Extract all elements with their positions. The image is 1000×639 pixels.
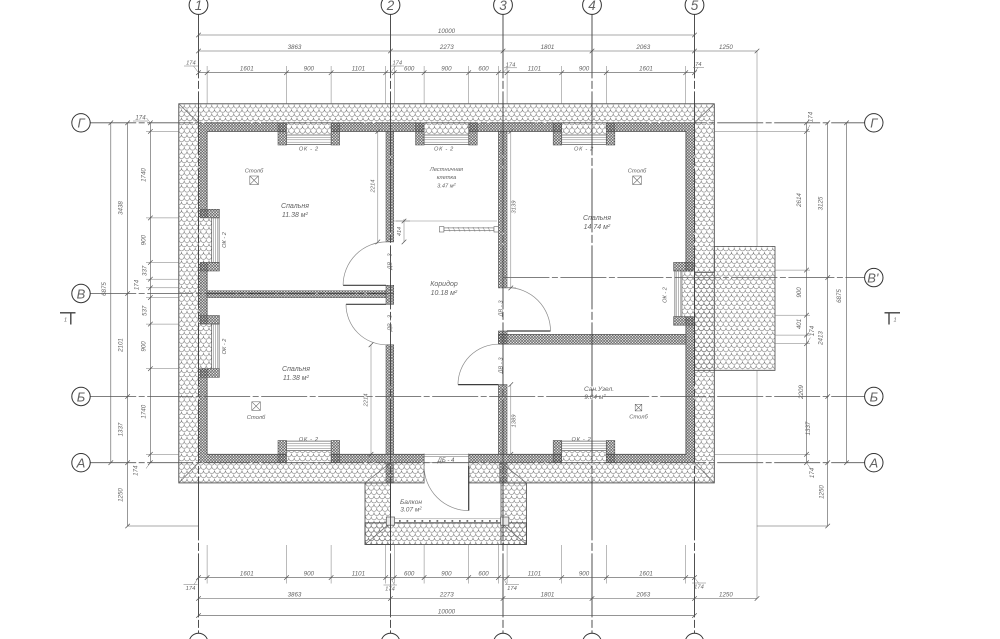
svg-text:174: 174 xyxy=(135,115,146,122)
svg-text:2214: 2214 xyxy=(364,394,370,408)
svg-text:1337: 1337 xyxy=(805,421,812,435)
svg-text:11.38 м2: 11.38 м2 xyxy=(282,211,309,219)
svg-text:3125: 3125 xyxy=(818,196,825,210)
svg-text:1740: 1740 xyxy=(141,168,148,182)
svg-text:Коридор: Коридор xyxy=(430,280,458,288)
svg-text:3139: 3139 xyxy=(512,200,518,214)
svg-text:В': В' xyxy=(867,270,879,285)
svg-text:1801: 1801 xyxy=(541,44,555,51)
svg-text:900: 900 xyxy=(441,570,452,577)
svg-text:900: 900 xyxy=(304,66,315,73)
svg-text:Спальня: Спальня xyxy=(281,203,309,210)
svg-text:Б: Б xyxy=(77,389,86,404)
svg-text:337: 337 xyxy=(141,265,148,276)
svg-text:ОК - 2: ОК - 2 xyxy=(299,437,319,443)
svg-text:900: 900 xyxy=(579,66,590,73)
svg-text:2101: 2101 xyxy=(117,338,124,353)
svg-text:1101: 1101 xyxy=(528,66,541,73)
svg-text:ДБ - 4: ДБ - 4 xyxy=(437,458,455,464)
svg-text:14.74 м2: 14.74 м2 xyxy=(584,223,611,231)
svg-text:ОК - 2: ОК - 2 xyxy=(574,147,594,153)
svg-text:600: 600 xyxy=(478,66,489,73)
svg-text:174: 174 xyxy=(134,279,141,290)
svg-text:900: 900 xyxy=(304,570,315,577)
svg-text:ДВ - 3: ДВ - 3 xyxy=(387,253,393,271)
svg-text:900: 900 xyxy=(141,341,148,352)
svg-text:174: 174 xyxy=(385,586,395,592)
svg-text:2273: 2273 xyxy=(439,591,454,598)
svg-text:2413: 2413 xyxy=(818,331,825,346)
svg-text:11.38 м2: 11.38 м2 xyxy=(283,374,310,382)
svg-text:ОК - 2: ОК - 2 xyxy=(222,338,228,355)
svg-text:А: А xyxy=(76,456,86,471)
svg-text:Столб: Столб xyxy=(245,169,264,175)
svg-text:2063: 2063 xyxy=(635,44,650,51)
svg-text:Г: Г xyxy=(870,116,878,131)
svg-text:1601: 1601 xyxy=(240,66,254,73)
svg-text:1: 1 xyxy=(195,0,203,13)
svg-text:74: 74 xyxy=(695,62,701,68)
svg-text:174: 174 xyxy=(186,586,196,592)
svg-text:Спальня: Спальня xyxy=(282,366,310,373)
svg-text:1: 1 xyxy=(64,318,67,324)
svg-text:3.07 м2: 3.07 м2 xyxy=(400,506,422,514)
svg-text:1250: 1250 xyxy=(719,44,733,51)
svg-text:174: 174 xyxy=(809,467,816,478)
svg-text:900: 900 xyxy=(579,570,590,577)
svg-text:3863: 3863 xyxy=(288,44,302,51)
svg-text:10000: 10000 xyxy=(438,28,456,35)
svg-text:Столб: Столб xyxy=(629,414,648,420)
svg-text:900: 900 xyxy=(796,287,803,298)
svg-text:ОК - 2: ОК - 2 xyxy=(434,147,454,153)
svg-text:2063: 2063 xyxy=(635,591,650,598)
svg-text:1601: 1601 xyxy=(639,66,653,73)
svg-text:2209: 2209 xyxy=(798,385,805,400)
svg-text:2614: 2614 xyxy=(796,193,803,208)
svg-text:Столб: Столб xyxy=(247,415,266,421)
svg-text:Столб: Столб xyxy=(628,169,647,175)
svg-text:3438: 3438 xyxy=(117,201,124,215)
svg-text:клетка: клетка xyxy=(437,175,457,181)
svg-text:Сан.Узел.: Сан.Узел. xyxy=(584,386,614,393)
svg-text:174: 174 xyxy=(133,465,140,476)
svg-text:Спальня: Спальня xyxy=(583,215,611,222)
svg-text:ОК - 2: ОК - 2 xyxy=(222,231,228,248)
svg-text:401: 401 xyxy=(796,319,803,329)
svg-text:9.04 м2: 9.04 м2 xyxy=(584,393,606,401)
svg-text:10.18 м2: 10.18 м2 xyxy=(431,289,458,297)
svg-text:1601: 1601 xyxy=(639,570,653,577)
svg-text:ОК - 2: ОК - 2 xyxy=(663,286,669,303)
svg-text:4: 4 xyxy=(588,0,596,13)
svg-text:414: 414 xyxy=(397,227,403,236)
svg-text:1250: 1250 xyxy=(818,485,825,499)
svg-text:900: 900 xyxy=(441,66,452,73)
svg-text:3: 3 xyxy=(499,0,507,13)
svg-text:ДВ - 3: ДВ - 3 xyxy=(387,314,393,332)
svg-text:174: 174 xyxy=(186,61,196,67)
svg-text:10000: 10000 xyxy=(438,608,456,615)
svg-text:А: А xyxy=(868,456,878,471)
svg-text:174: 174 xyxy=(507,586,517,592)
svg-text:В: В xyxy=(77,286,86,301)
svg-text:600: 600 xyxy=(478,570,489,577)
svg-text:2273: 2273 xyxy=(439,44,454,51)
svg-text:174: 174 xyxy=(506,62,516,68)
svg-text:1337: 1337 xyxy=(117,422,124,436)
svg-text:1389: 1389 xyxy=(512,414,518,428)
svg-text:1740: 1740 xyxy=(141,404,148,418)
svg-text:174: 174 xyxy=(809,325,816,336)
svg-text:174: 174 xyxy=(392,61,402,67)
svg-text:600: 600 xyxy=(404,66,415,73)
svg-text:Б: Б xyxy=(870,389,879,404)
svg-text:600: 600 xyxy=(404,570,415,577)
svg-text:ОК - 2: ОК - 2 xyxy=(572,437,592,443)
svg-text:6875: 6875 xyxy=(836,289,843,303)
svg-text:Г: Г xyxy=(77,116,85,131)
svg-text:1801: 1801 xyxy=(541,591,555,598)
svg-text:ДВ - 3: ДВ - 3 xyxy=(499,300,505,318)
svg-text:1101: 1101 xyxy=(528,570,541,577)
svg-text:3863: 3863 xyxy=(288,591,302,598)
svg-text:537: 537 xyxy=(141,305,148,316)
svg-text:6875: 6875 xyxy=(101,282,108,296)
svg-text:900: 900 xyxy=(141,234,148,245)
svg-text:174: 174 xyxy=(694,584,704,590)
svg-text:174: 174 xyxy=(808,111,815,122)
svg-text:1101: 1101 xyxy=(352,570,365,577)
svg-text:2: 2 xyxy=(386,0,395,13)
svg-text:1: 1 xyxy=(894,318,897,324)
svg-text:Лестничная: Лестничная xyxy=(429,167,463,173)
svg-text:1250: 1250 xyxy=(118,488,125,502)
svg-text:1601: 1601 xyxy=(240,570,254,577)
svg-text:1101: 1101 xyxy=(352,66,365,73)
svg-text:ОК - 2: ОК - 2 xyxy=(299,147,319,153)
svg-text:ДВ - 3: ДВ - 3 xyxy=(499,357,505,375)
svg-text:5: 5 xyxy=(691,0,699,13)
svg-text:2214: 2214 xyxy=(371,180,377,194)
svg-text:1250: 1250 xyxy=(719,591,733,598)
